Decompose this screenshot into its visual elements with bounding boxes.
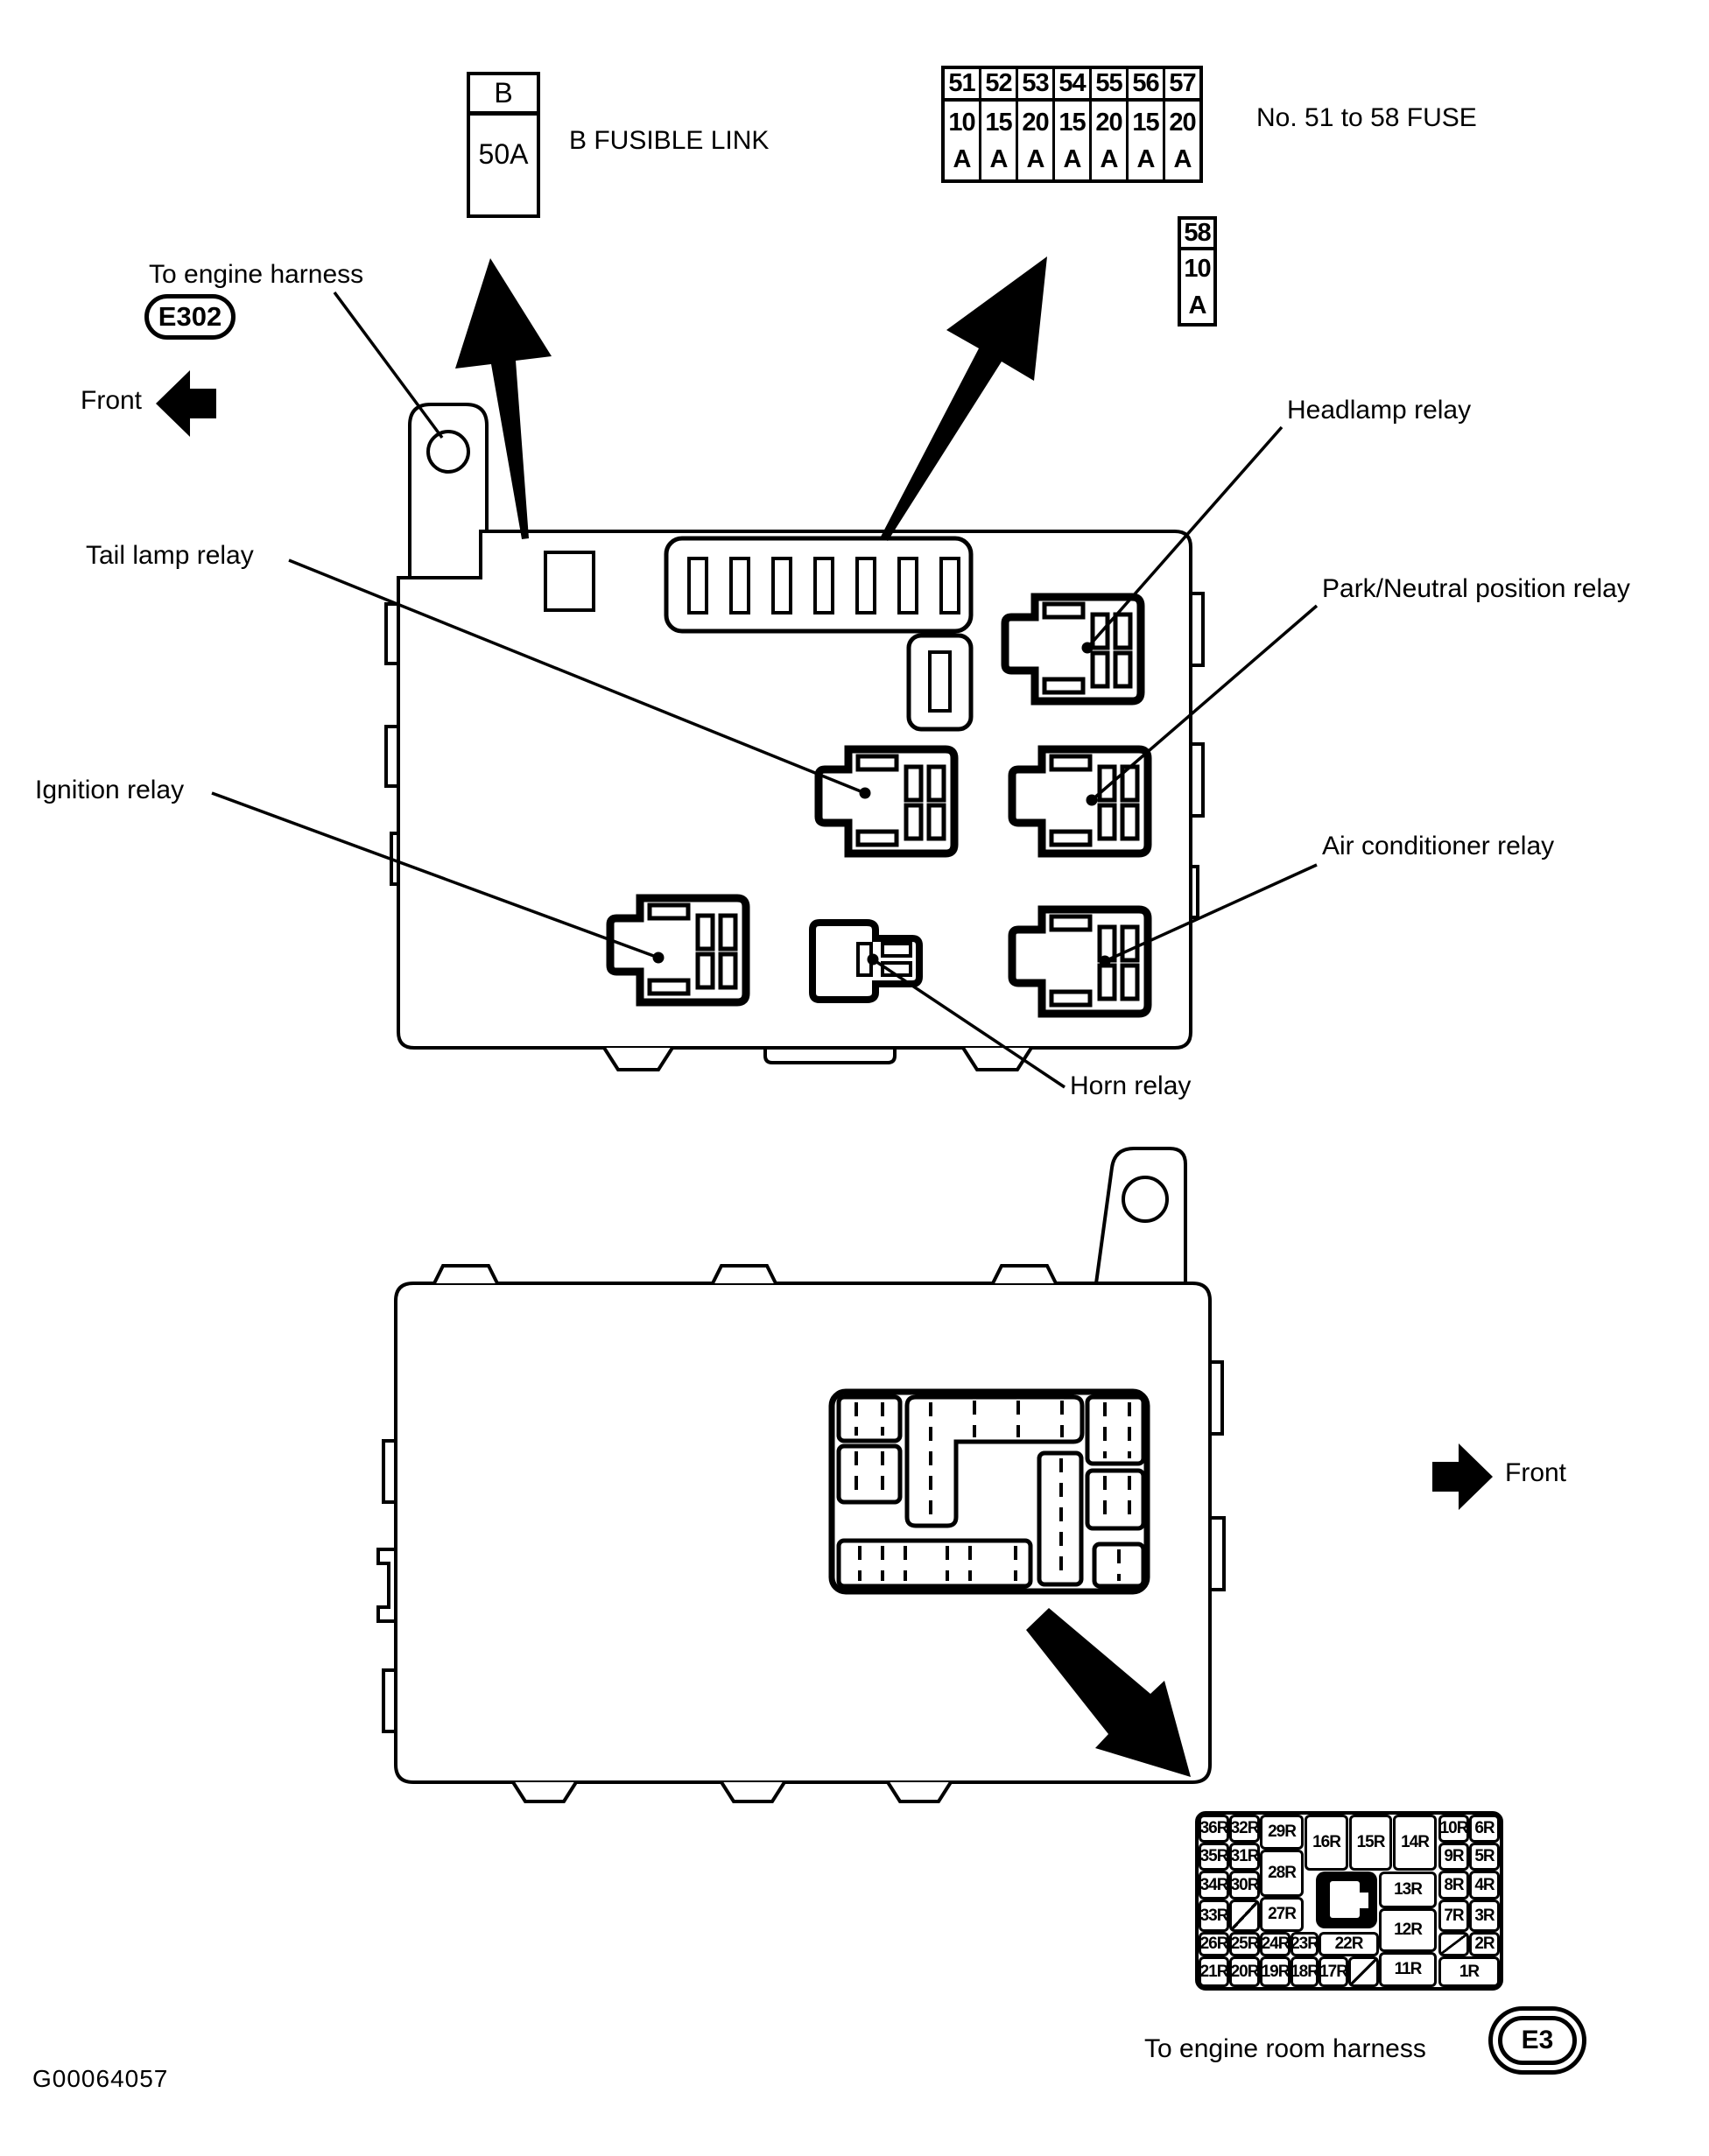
fuse-number: 53: [1018, 69, 1052, 102]
fuse-amp: 20: [1169, 104, 1195, 141]
grid-cell-32r: 32R: [1229, 1815, 1260, 1843]
fuse-cell: 55 20A: [1092, 69, 1129, 179]
grid-cell-34r: 34R: [1199, 1871, 1229, 1900]
fusible-link-name: B: [470, 75, 537, 116]
leader-engine-harness: [334, 292, 442, 438]
grid-cell-28r: 28R: [1260, 1850, 1304, 1897]
grid-cell-27r: 27R: [1260, 1897, 1304, 1932]
fuse-number: 57: [1165, 69, 1199, 102]
lower-mounting-tab: [1096, 1148, 1185, 1283]
grid-cell-23r: 23R: [1291, 1932, 1319, 1956]
fusible-link-rating: 50A: [470, 116, 537, 214]
air-conditioner-relay-label: Air conditioner relay: [1322, 832, 1554, 861]
connector-e3: E3: [1488, 2006, 1586, 2075]
grid-cell-25r: 25R: [1229, 1932, 1260, 1956]
front-arrow-left-icon: [156, 370, 216, 437]
upper-bolt-hole: [428, 432, 468, 472]
grid-cell-4r: 4R: [1469, 1871, 1500, 1900]
grid-cell-18r: 18R: [1291, 1956, 1319, 1987]
headlamp-relay-label: Headlamp relay: [1287, 396, 1471, 425]
relay-position-grid: 36R 32R 35R 31R 34R 30R 33R 29R 28R 27R …: [1195, 1811, 1503, 1991]
fuse-number: 54: [1055, 69, 1089, 102]
fuse-unit: A: [1137, 141, 1155, 178]
fuse-cell: 52 15A: [981, 69, 1018, 179]
fuse-amp: 10: [948, 104, 974, 141]
tail-lamp-relay-label: Tail lamp relay: [86, 541, 254, 571]
fuse-unit: A: [1027, 141, 1044, 178]
fuse-unit: A: [1189, 287, 1206, 324]
fuse-strip-51-57: 51 10A 52 15A 53 20A 54 15A 55 20A 56 15…: [941, 66, 1203, 183]
fusible-link-caption: B FUSIBLE LINK: [569, 126, 769, 156]
grid-cell-12r: 12R: [1379, 1908, 1437, 1952]
fuse-strip-caption: No. 51 to 58 FUSE: [1256, 103, 1477, 133]
grid-cell-31r: 31R: [1229, 1843, 1260, 1871]
grid-cell-1r: 1R: [1438, 1956, 1500, 1987]
fuse-number: 51: [945, 69, 979, 102]
fuse-cell: 53 20A: [1018, 69, 1055, 179]
grid-center-connector: [1316, 1872, 1377, 1928]
connector-e3-code: E3: [1498, 2016, 1577, 2065]
fuse-amp: 20: [1022, 104, 1048, 141]
grid-cell-22r: 22R: [1319, 1932, 1379, 1956]
grid-cell-17r: 17R: [1319, 1956, 1348, 1987]
fuse-amp: 15: [1058, 104, 1085, 141]
fuse-cell: 54 15A: [1055, 69, 1092, 179]
front-arrow-right-icon: [1432, 1443, 1493, 1510]
figure-code: G00064057: [32, 2064, 168, 2094]
to-engine-room-harness-label: To engine room harness: [1144, 2034, 1426, 2064]
fuse-unit: A: [1174, 141, 1192, 178]
fuse-cell: 57 20A: [1165, 69, 1199, 179]
grid-cell-16r: 16R: [1305, 1815, 1348, 1871]
grid-cell-9r: 9R: [1438, 1843, 1469, 1871]
grid-cell-blank-diagonal: [1229, 1900, 1260, 1932]
fuse-cell: 56 15A: [1129, 69, 1165, 179]
fuse-number: 52: [981, 69, 1016, 102]
ignition-relay-label: Ignition relay: [35, 776, 184, 805]
front-label-upper: Front: [81, 386, 142, 416]
fuse-unit: A: [990, 141, 1008, 178]
grid-cell-10r: 10R: [1438, 1815, 1469, 1843]
arrow-up-right: [881, 256, 1047, 541]
arrow-up-left: [455, 258, 552, 539]
grid-cell-13r: 13R: [1379, 1872, 1437, 1908]
grid-cell-19r: 19R: [1260, 1956, 1291, 1987]
grid-cell-2r: 2R: [1469, 1932, 1500, 1956]
fuse-58-box: 58 10A: [1178, 216, 1217, 327]
fuse-amp: 15: [1132, 104, 1158, 141]
grid-cell-21r: 21R: [1199, 1956, 1229, 1987]
grid-cell-6r: 6R: [1469, 1815, 1500, 1843]
grid-cell-35r: 35R: [1199, 1843, 1229, 1871]
fuse-number: 55: [1092, 69, 1126, 102]
grid-cell-24r: 24R: [1260, 1932, 1291, 1956]
fuse-cell: 51 10A: [945, 69, 981, 179]
grid-cell-14r: 14R: [1393, 1815, 1437, 1871]
grid-cell-blank-diagonal: [1348, 1956, 1379, 1987]
grid-cell-11r: 11R: [1379, 1952, 1437, 1987]
to-engine-harness-label: To engine harness: [149, 260, 363, 290]
lower-connector-block: [832, 1392, 1147, 1591]
grid-cell-36r: 36R: [1199, 1815, 1229, 1843]
fusible-link-box: B 50A: [467, 72, 540, 218]
horn-relay-label: Horn relay: [1070, 1071, 1191, 1101]
grid-cell-3r: 3R: [1469, 1900, 1500, 1932]
fuse-amp: 20: [1095, 104, 1122, 141]
grid-cell-33r: 33R: [1199, 1900, 1229, 1932]
fuse-unit: A: [1064, 141, 1081, 178]
grid-cell-26r: 26R: [1199, 1932, 1229, 1956]
fuse-box-diagram: B 50A B FUSIBLE LINK 51 10A 52 15A 53 20…: [0, 0, 1709, 2156]
fuse-unit: A: [1101, 141, 1118, 178]
park-neutral-relay-label: Park/Neutral position relay: [1322, 574, 1630, 604]
fuse-amp: 10: [1184, 250, 1210, 287]
grid-cell-20r: 20R: [1229, 1956, 1260, 1987]
grid-cell-5r: 5R: [1469, 1843, 1500, 1871]
grid-cell-8r: 8R: [1438, 1871, 1469, 1900]
grid-cell-7r: 7R: [1438, 1900, 1469, 1932]
grid-cell-15r: 15R: [1349, 1815, 1392, 1871]
grid-cell-blank-diagonal: [1438, 1932, 1469, 1956]
fuse-unit: A: [953, 141, 971, 178]
fuse-amp: 15: [985, 104, 1011, 141]
fuse-number: 56: [1129, 69, 1163, 102]
fuse-number: 58: [1181, 220, 1213, 250]
grid-cell-30r: 30R: [1229, 1871, 1260, 1900]
connector-e302: E302: [144, 294, 236, 340]
front-label-lower: Front: [1505, 1458, 1566, 1488]
grid-cell-29r: 29R: [1260, 1815, 1304, 1850]
